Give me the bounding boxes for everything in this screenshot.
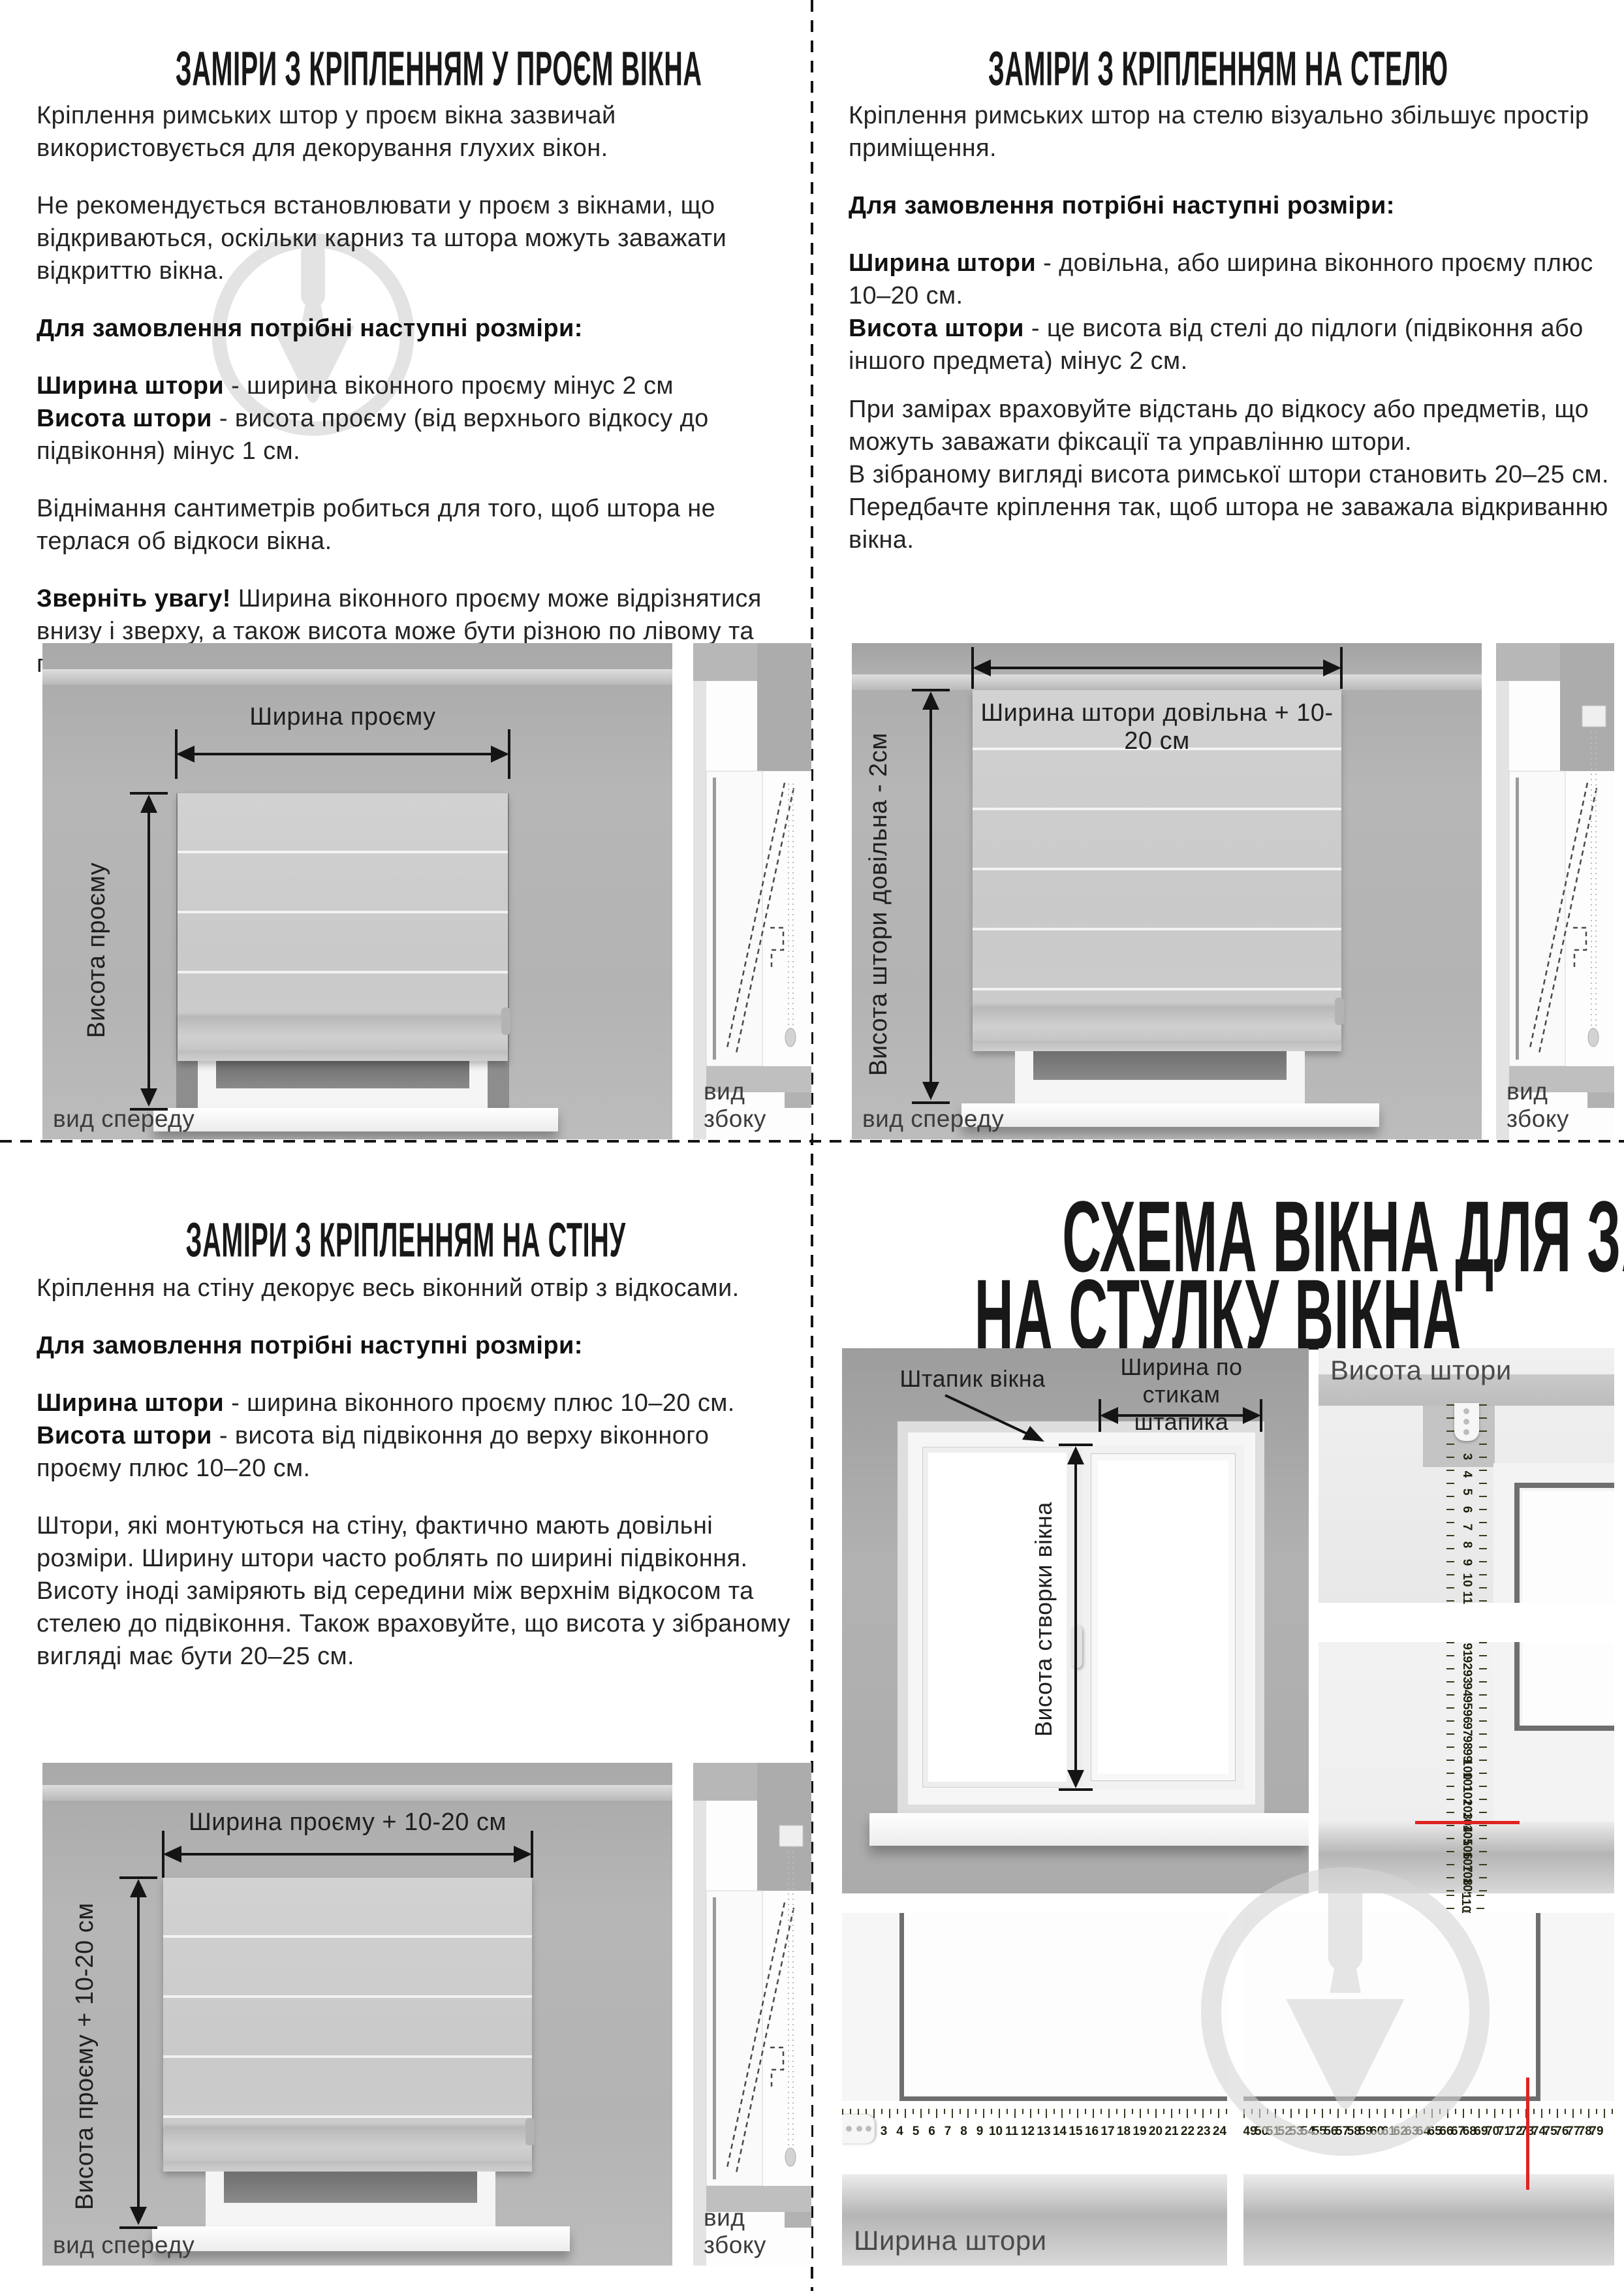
- right-sash-glass: [1091, 1454, 1235, 1780]
- window-glass: [224, 2172, 477, 2203]
- window-glass: [1033, 1051, 1287, 1080]
- crown-molding: [42, 1785, 672, 1801]
- leaflet-page: ЗАМІРИ З КРІПЛЕННЯМ У ПРОЄМ ВІКНА Кріпле…: [0, 0, 1624, 2291]
- sash-height-arrow: [1062, 1446, 1089, 1788]
- tape-number: 24: [1209, 2125, 1228, 2139]
- side-view-drawing: [693, 643, 811, 1139]
- glass: [1522, 1642, 1614, 1726]
- opening-height-arrow: [124, 1879, 153, 2225]
- side-view-panel-opening: вид збоку: [693, 643, 811, 1139]
- section-title-ceiling-mount: ЗАМІРИ З КРІПЛЕННЯМ НА СТЕЛЮ: [812, 40, 1624, 90]
- glass: [1522, 1491, 1614, 1603]
- opening-height-label: Висота проєму + 10-20 см: [71, 1893, 99, 2220]
- vertical-tape-top: 34567891011: [1446, 1404, 1487, 1603]
- width-measure-red-mark: [1526, 2078, 1529, 2190]
- roman-blind: [163, 1878, 532, 2172]
- size-definitions: Ширина штори - довільна, або ширина віко…: [849, 247, 1611, 377]
- glass-edge-left: [1514, 1483, 1520, 1603]
- glass: [904, 1913, 1227, 2096]
- side-view-panel-ceiling: вид збоку: [1496, 643, 1614, 1139]
- vertical-tape-bottom: 9192939495969798991001011021031041051061…: [1446, 1642, 1487, 1893]
- paragraph: Кріплення римських штор на стелю візуаль…: [849, 99, 1611, 165]
- curtain-height-label: Висота штори довільна - 2см: [865, 721, 893, 1087]
- tape-panel-bottom-segment: 9192939495969798991001011021031041051061…: [1319, 1642, 1614, 1893]
- opening-height-label: Висота проєму: [83, 819, 111, 1081]
- front-view-panel-ceiling: Ширина штори довільна + 10-20 см Висота …: [852, 643, 1482, 1139]
- roman-blind: [178, 793, 508, 1061]
- curtain-width-panel-label: Ширина штори: [854, 2225, 1089, 2256]
- tape-number: 11: [1460, 1587, 1474, 1609]
- arrow-end-bar: [119, 2226, 157, 2229]
- glass: [1243, 1913, 1536, 2096]
- section-title-sash-scheme-line2: НА СТУЛКУ ВІКНА: [812, 1257, 1624, 1361]
- order-lead: Для замовлення потрібні наступні розміри…: [37, 1329, 799, 1362]
- curtain-width-label: Ширина штори довільна + 10-20 см: [973, 699, 1341, 755]
- curtain-height-tape-panel: 34567891011 Висота штори 919293949596979…: [1319, 1348, 1614, 1893]
- front-view-tag: вид спереду: [53, 2232, 195, 2259]
- glass-edge-bottom: [899, 2096, 1227, 2101]
- side-view-drawing: [693, 1763, 811, 2266]
- paragraph: Штори, які монтуються на стіну, фактично…: [37, 1509, 799, 1673]
- height-measure-red-mark: [1415, 1821, 1520, 1824]
- ceiling-mount-text: Кріплення римських штор на стелю візуаль…: [849, 99, 1611, 556]
- crown-molding: [42, 669, 672, 685]
- order-lead: Для замовлення потрібні наступні розміри…: [37, 312, 799, 345]
- section-title-opening-mount: ЗАМІРИ З КРІПЛЕННЯМ У ПРОЄМ ВІКНА: [0, 40, 812, 90]
- glass-edge-right: [1536, 1913, 1540, 2101]
- curtain-width-tape-panel-left: 3456789101112131415161718192021222324 Ши…: [842, 1913, 1227, 2266]
- glass-edge-left: [899, 1913, 904, 2101]
- glass-edge-bottom: [1514, 1726, 1614, 1731]
- side-view-panel-wall: вид збоку: [693, 1763, 811, 2266]
- joints-width-arrow: [1100, 1402, 1261, 1429]
- front-view-panel-wall: Ширина проєму + 10-20 см Висота проєму +…: [42, 1763, 672, 2266]
- front-view-tag: вид спереду: [862, 1105, 1004, 1133]
- window-sill: [869, 1813, 1309, 1846]
- paragraph: Віднімання сантиметрів робиться для того…: [37, 492, 799, 558]
- window-glass: [216, 1061, 469, 1088]
- arrow-end-bar: [912, 1101, 950, 1104]
- sash-scheme-window-panel: Штапик вікна Ширина по стикам штапика Ви…: [842, 1348, 1309, 1893]
- paragraph: Не рекомендується встановлювати у проєм …: [37, 189, 799, 287]
- curtain-width-tape-panel-right: 4950515253545556575859606162636465666768…: [1243, 1913, 1614, 2266]
- opening-height-arrow: [134, 795, 163, 1107]
- curtain-height-arrow: [916, 691, 945, 1100]
- curtain-width-arrow: [973, 654, 1341, 682]
- horizontal-tape-left: 3456789101112131415161718192021222324: [842, 2109, 1227, 2149]
- opening-mount-text: Кріплення римських штор у проєм вікна за…: [37, 99, 799, 680]
- paragraph: Кріплення на стіну декорує весь віконний…: [37, 1272, 799, 1304]
- glass-edge-top: [1514, 1483, 1614, 1488]
- wall-mount-text: Кріплення на стіну декорує весь віконний…: [37, 1272, 799, 1673]
- paragraph: При замірах враховуйте відстань до відко…: [849, 393, 1611, 556]
- tape-number: 79: [1585, 2125, 1608, 2139]
- sash-height-label: Висота створки вікна: [1030, 1466, 1057, 1773]
- window-sill: [961, 1103, 1379, 1127]
- window-sill: [153, 1108, 558, 1131]
- opening-width-label: Ширина проєму: [176, 703, 509, 731]
- opening-width-arrow: [163, 1840, 532, 1869]
- paragraph: Кріплення римських штор у проєм вікна за…: [37, 99, 799, 165]
- front-view-panel-opening: Ширина проєму Висота проєму вид спереду: [42, 643, 672, 1139]
- arrow-end-bar: [1059, 1788, 1093, 1791]
- bead-label: Штапик вікна: [868, 1365, 1077, 1393]
- side-view-drawing: [1496, 643, 1614, 1139]
- glass-edge-bottom: [1243, 2096, 1540, 2101]
- size-definitions: Ширина штори - ширина віконного проєму п…: [37, 1387, 799, 1485]
- order-lead: Для замовлення потрібні наступні розміри…: [849, 189, 1611, 222]
- sill-shadow: [1243, 2174, 1614, 2266]
- side-view-tag: вид збоку: [704, 2204, 811, 2259]
- side-view-tag: вид збоку: [1507, 1078, 1614, 1133]
- curtain-height-panel-label: Висота штори: [1330, 1355, 1565, 1386]
- side-view-tag: вид збоку: [704, 1078, 811, 1133]
- glass-edge-left: [1514, 1642, 1520, 1731]
- center-horizontal-dashed-divider: [0, 1140, 1624, 1143]
- section-title-wall-mount: ЗАМІРИ З КРІПЛЕННЯМ НА СТІНУ: [0, 1212, 812, 1261]
- opening-width-label: Ширина проєму + 10-20 см: [163, 1809, 532, 1837]
- bead-arrow: [940, 1390, 1057, 1455]
- size-definitions: Ширина штори - ширина віконного проєму м…: [37, 370, 799, 467]
- window-sill: [152, 2226, 570, 2251]
- horizontal-tape-right: 4950515253545556575859606162636465666768…: [1243, 2109, 1614, 2149]
- tape-panel-top-segment: 34567891011 Висота штори: [1319, 1348, 1614, 1603]
- front-view-tag: вид спереду: [53, 1105, 195, 1133]
- opening-width-arrow: [176, 740, 509, 768]
